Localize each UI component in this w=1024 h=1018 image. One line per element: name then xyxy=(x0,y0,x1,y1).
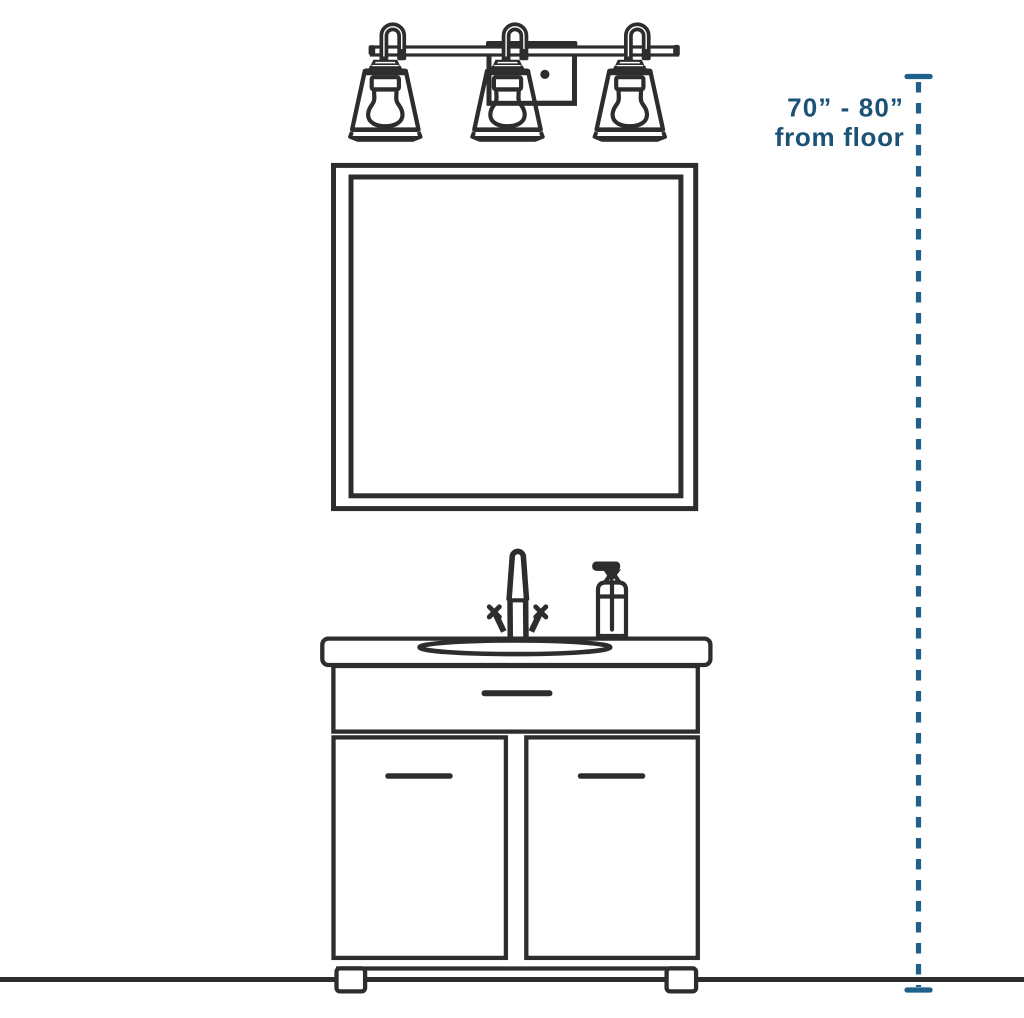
svg-text:from floor: from floor xyxy=(775,122,905,152)
svg-text:70” - 80”: 70” - 80” xyxy=(787,93,904,123)
